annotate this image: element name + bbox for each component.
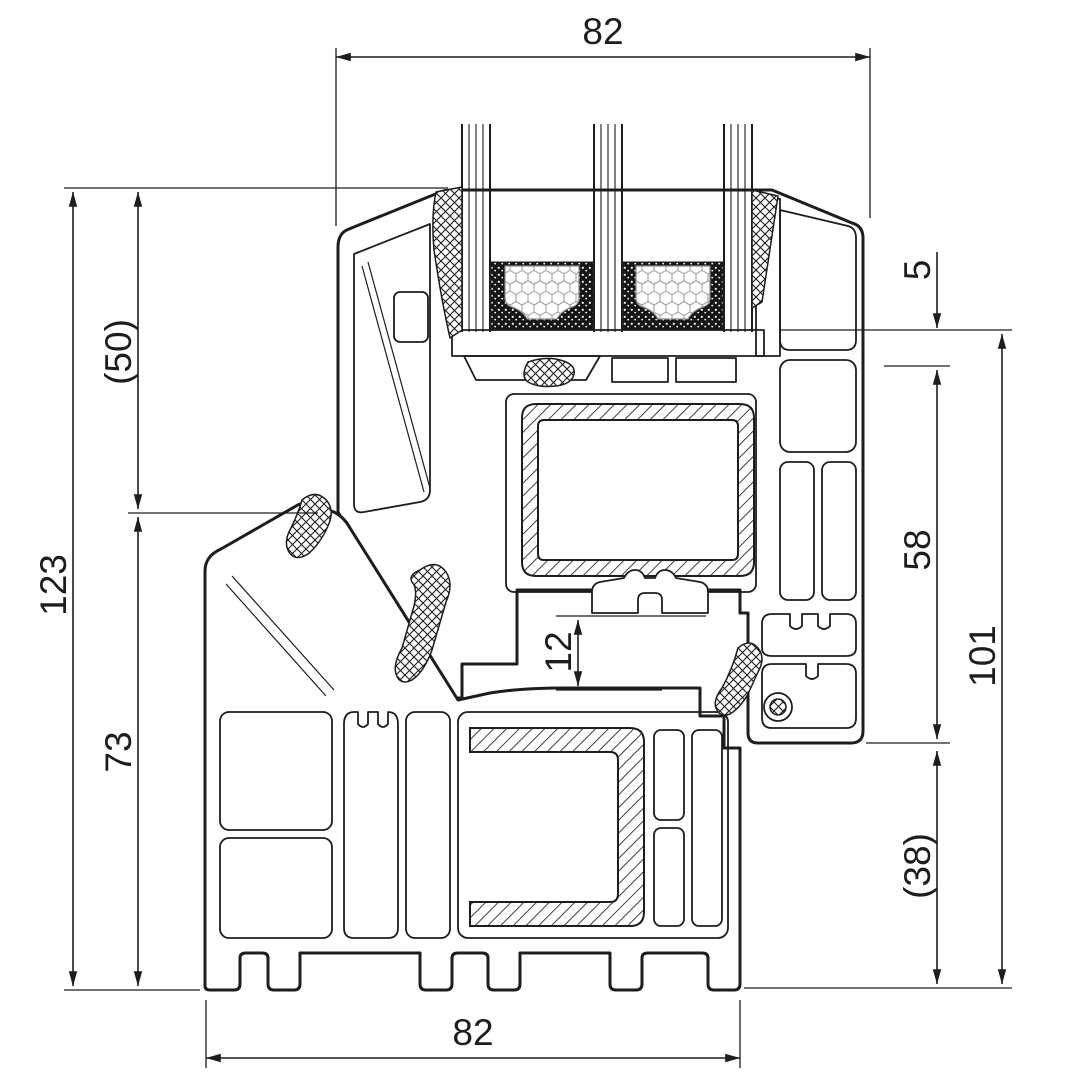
round-gasket-core	[770, 699, 786, 715]
dim-rebate-gap: 12	[538, 620, 579, 686]
technical-drawing-page: 82 82 123 (50) 73 5 58	[0, 0, 1080, 1080]
glazing-spacer-1	[491, 262, 593, 330]
dim-right-upper: 58	[897, 370, 938, 739]
dim-label-bottom-width: 82	[452, 1012, 493, 1053]
dim-right-lower: (38)	[897, 751, 938, 984]
dim-label-right-lower: (38)	[897, 833, 938, 899]
dim-label-left-total: 123	[33, 554, 74, 616]
window-section-drawing: 82 82 123 (50) 73 5 58	[0, 0, 1080, 1080]
dim-label-top-width: 82	[582, 11, 623, 52]
dim-label-rebate-gap: 12	[538, 631, 579, 672]
dim-top-width: 82	[336, 11, 870, 57]
dim-left-total: 123	[33, 192, 74, 986]
dim-right-offset: 5	[897, 252, 938, 328]
dim-left-lower: 73	[98, 517, 139, 986]
dim-label-left-upper: (50)	[98, 319, 139, 385]
dim-label-right-offset: 5	[897, 260, 938, 281]
dim-bottom-width: 82	[206, 1012, 740, 1058]
dim-label-right-upper: 58	[897, 529, 938, 570]
dim-label-left-lower: 73	[98, 731, 139, 772]
bridge-gasket	[524, 358, 574, 386]
glazing-spacer-2	[623, 262, 723, 330]
dim-left-upper: (50)	[98, 192, 139, 509]
dim-label-right-overall: 101	[962, 625, 1003, 687]
dim-right-overall: 101	[962, 334, 1003, 984]
